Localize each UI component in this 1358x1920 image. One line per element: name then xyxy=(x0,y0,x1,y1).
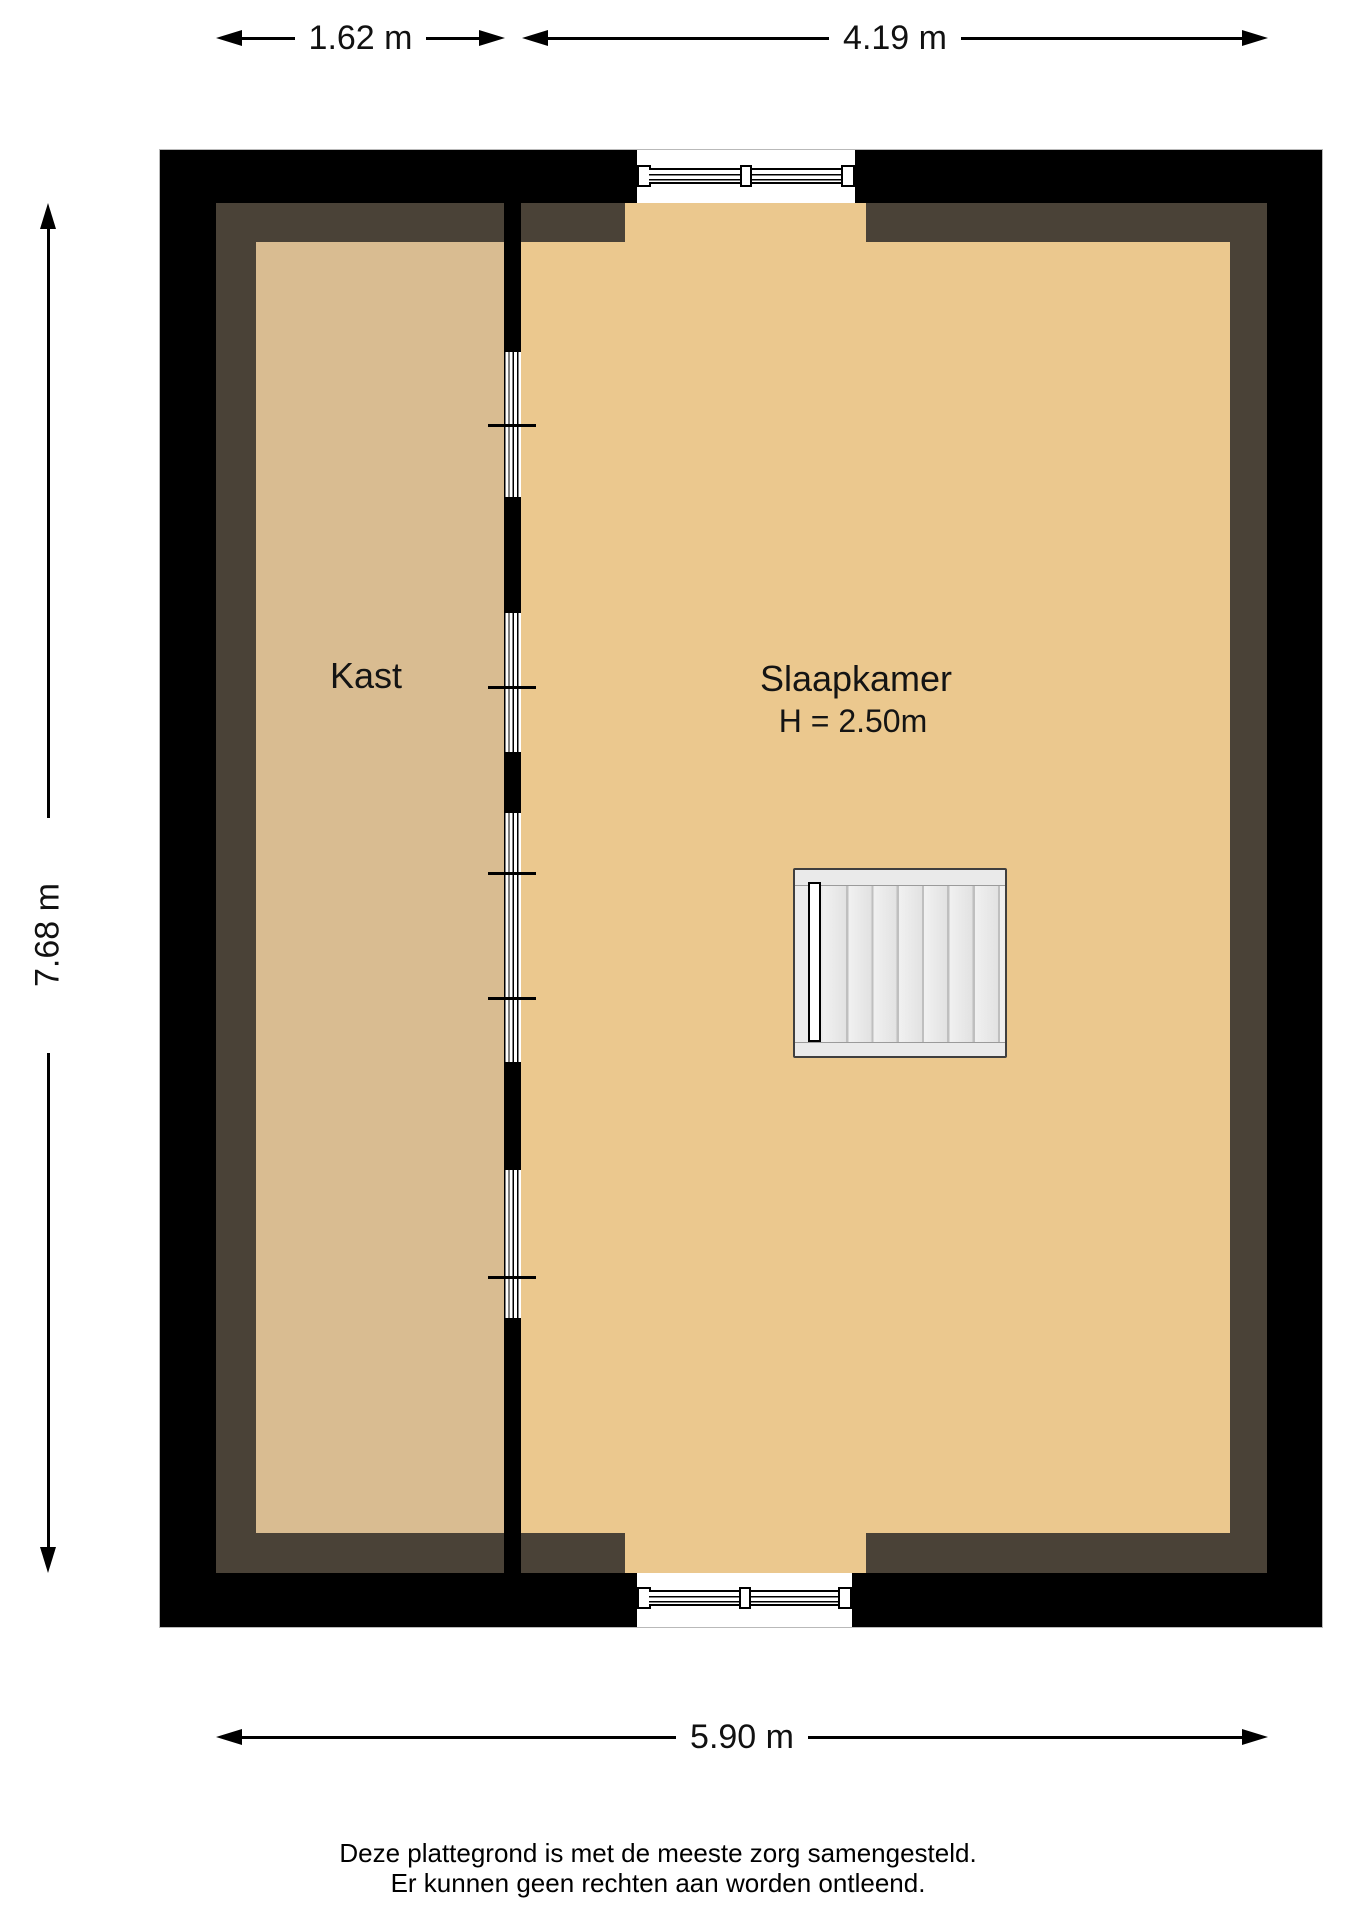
arrowhead-left-icon xyxy=(216,1729,242,1745)
glass-partition-segment xyxy=(504,613,521,752)
dimension-label: 7.68 m xyxy=(29,883,68,987)
room-label-slaapkamer: Slaapkamer xyxy=(656,658,1056,700)
stair-landing-bottom xyxy=(795,1042,1005,1056)
glass-partition-segment xyxy=(504,1170,521,1318)
glass-partition-segment xyxy=(504,813,521,1062)
window-frame-end xyxy=(841,165,855,187)
dimension-line xyxy=(47,1053,50,1549)
window-mullion xyxy=(739,1587,751,1609)
arrowhead-down-icon xyxy=(40,1547,56,1573)
dimension-label: 5.90 m xyxy=(676,1720,808,1754)
floor-strip-under-bottom-window xyxy=(625,1533,866,1573)
arrowhead-left-icon xyxy=(522,30,548,46)
dimension-kast-width: 1.62 m xyxy=(216,21,505,55)
disclaimer-line-2: Er kunnen geen rechten aan worden ontlee… xyxy=(0,1868,1337,1898)
window-tick-mark xyxy=(488,872,536,875)
room-kast-floor xyxy=(256,242,504,1533)
disclaimer-line-1: Deze plattegrond is met de meeste zorg s… xyxy=(0,1838,1337,1868)
stair-treads xyxy=(823,886,1005,1042)
dimension-label: 1.62 m xyxy=(295,21,427,55)
top-window xyxy=(637,150,855,203)
divider-wall xyxy=(504,202,521,1573)
bottom-window xyxy=(637,1573,852,1627)
ceiling-height-label: H = 2.50m xyxy=(653,703,1053,740)
dimension-line xyxy=(242,37,295,40)
dimension-line xyxy=(808,1736,1242,1739)
arrowhead-up-icon xyxy=(40,203,56,229)
arrowhead-right-icon xyxy=(1242,1729,1268,1745)
window-tick-mark xyxy=(488,1276,536,1279)
window-mullion xyxy=(740,165,752,187)
stair-rail-slot xyxy=(808,882,821,1042)
window-tick-mark xyxy=(488,686,536,689)
dimension-line xyxy=(548,37,829,40)
window-frame-end xyxy=(838,1587,852,1609)
arrowhead-right-icon xyxy=(1242,30,1268,46)
dimension-line xyxy=(961,37,1242,40)
dimension-line xyxy=(47,227,50,818)
dimension-slaapkamer-width: 4.19 m xyxy=(522,21,1268,55)
arrowhead-left-icon xyxy=(216,30,242,46)
dimension-total-width: 5.90 m xyxy=(216,1720,1268,1754)
dimension-label: 4.19 m xyxy=(829,21,961,55)
dimension-line xyxy=(242,1736,676,1739)
dimension-line xyxy=(426,37,479,40)
window-tick-mark xyxy=(488,424,536,427)
floor-strip-under-top-window xyxy=(625,203,866,242)
arrowhead-right-icon xyxy=(479,30,505,46)
staircase xyxy=(793,868,1007,1058)
window-tick-mark xyxy=(488,997,536,1000)
disclaimer: Deze plattegrond is met de meeste zorg s… xyxy=(0,1838,1337,1898)
floor-plan: 1.62 m 4.19 m 7.68 m xyxy=(0,0,1358,1920)
stair-landing-top xyxy=(795,870,1005,886)
room-label-kast: Kast xyxy=(266,655,466,697)
